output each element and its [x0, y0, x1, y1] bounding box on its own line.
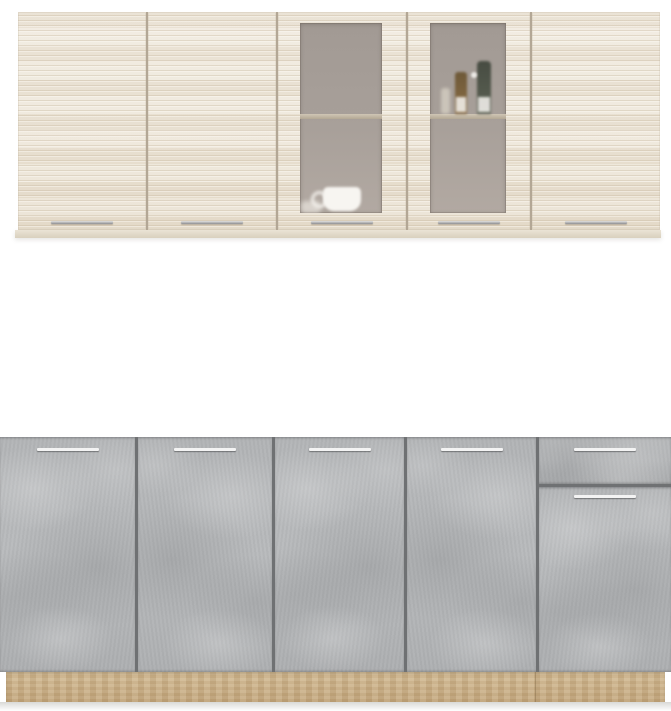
- wall-door-2: [148, 12, 276, 230]
- door-handle: [174, 448, 236, 451]
- wall-door-1: [18, 12, 146, 230]
- lower-cabinet-row: [0, 437, 671, 672]
- shelf-edge: [300, 114, 382, 119]
- bottle-label: [478, 97, 490, 112]
- plinth-kickboard: [6, 672, 665, 702]
- floor-shadow: [0, 702, 671, 711]
- frosted-glass-panel: [430, 23, 506, 213]
- door-handle: [565, 221, 627, 224]
- bottle-label: [456, 97, 466, 112]
- door-handle: [181, 221, 243, 224]
- upper-cabinet-row: [18, 12, 660, 230]
- door-handle: [441, 448, 503, 451]
- base-door-2: [138, 437, 272, 672]
- door-handle: [574, 495, 636, 498]
- kitchen-cabinet-product-photo: [0, 0, 671, 711]
- wall-door-5: [532, 12, 660, 230]
- amber-bottle: [455, 72, 467, 114]
- shelf-edge: [430, 114, 506, 119]
- base-door-1: [0, 437, 135, 672]
- door-handle: [309, 448, 371, 451]
- base-door-4: [407, 437, 536, 672]
- door-handle: [37, 448, 99, 451]
- base-drawer-unit: [539, 437, 671, 672]
- upper-cabinet-bottom-panel: [15, 230, 661, 238]
- cup-group: [300, 183, 382, 213]
- door-handle: [438, 221, 500, 224]
- green-bottle: [477, 61, 491, 114]
- base-door-3: [275, 437, 404, 672]
- door-handle: [311, 221, 373, 224]
- drawer-handle: [574, 448, 636, 451]
- bottle-group: [430, 23, 506, 114]
- drawer-front: [539, 437, 671, 484]
- plinth-seam: [535, 672, 536, 702]
- light-bottle: [441, 88, 450, 114]
- white-cup: [323, 187, 361, 211]
- base-door-5: [539, 487, 671, 672]
- wall-door-4-glass: [408, 12, 530, 230]
- wall-door-3-glass: [278, 12, 406, 230]
- door-handle: [51, 221, 113, 224]
- frosted-glass-panel: [300, 23, 382, 213]
